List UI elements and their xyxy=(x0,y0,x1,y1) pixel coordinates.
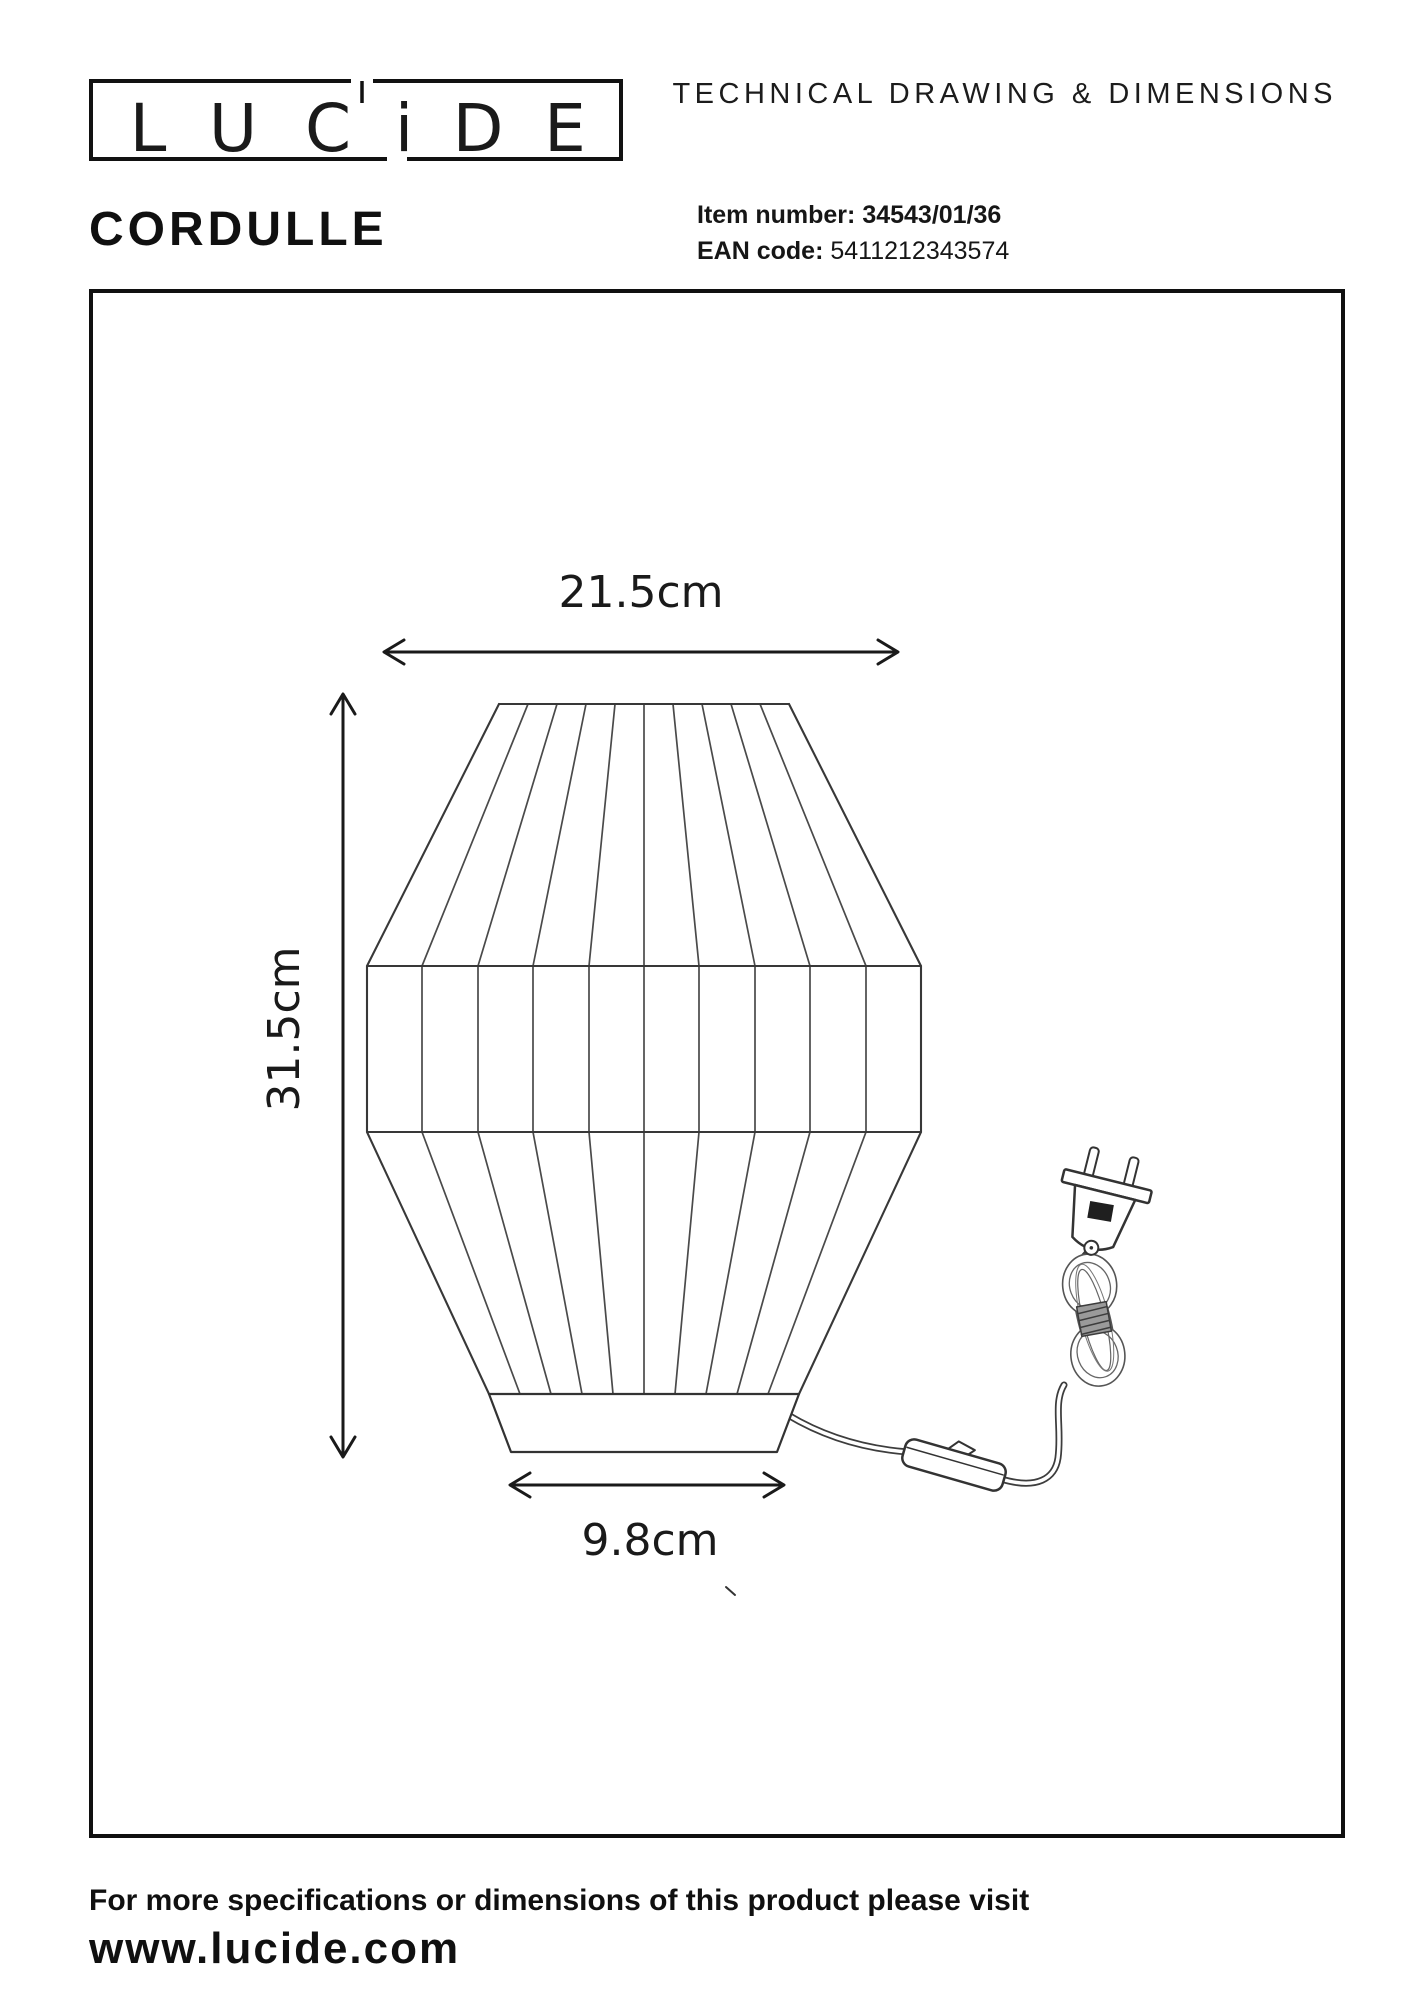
ean-row: EAN code: 5411212343574 xyxy=(697,233,1009,269)
logo-letter: i xyxy=(395,90,413,163)
lamp-base xyxy=(489,1394,799,1452)
ean-value: 5411212343574 xyxy=(830,237,1009,265)
pleat-line xyxy=(589,704,615,1394)
logo-letter: D xyxy=(453,90,504,163)
logo-letter: L xyxy=(130,90,167,163)
width-dimension-arrow xyxy=(384,640,898,664)
pleat-line xyxy=(673,704,699,1394)
page: L U C i D E TECHNICAL DRAWING & DIMENSIO… xyxy=(0,0,1414,2000)
height-dimension-arrow xyxy=(331,694,355,1457)
item-number-row: Item number: 34543/01/36 xyxy=(697,197,1009,233)
logo-frame xyxy=(91,81,621,159)
cord-coil xyxy=(1042,1244,1145,1396)
technical-drawing: 21.5cm 31.5cm xyxy=(93,293,1341,1834)
doc-title: TECHNICAL DRAWING & DIMENSIONS xyxy=(672,78,1337,111)
stray-mark xyxy=(726,1587,735,1595)
pleat-line xyxy=(422,704,528,1394)
pleat-line xyxy=(478,704,557,1394)
logo-letter: U xyxy=(209,90,257,163)
website-url: www.lucide.com xyxy=(89,1924,1029,1974)
power-plug-icon xyxy=(1046,1142,1159,1266)
footer: For more specifications or dimensions of… xyxy=(89,1884,1029,1974)
product-name: CORDULLE xyxy=(89,202,388,257)
base-dimension-arrow xyxy=(510,1473,784,1497)
logo-letter: E xyxy=(544,90,586,163)
drawing-box: 21.5cm 31.5cm xyxy=(89,289,1345,1838)
inline-switch xyxy=(900,1428,1010,1493)
item-number-label: Item number: xyxy=(697,201,855,229)
width-dimension-label: 21.5cm xyxy=(558,567,723,618)
height-dimension-label: 31.5cm xyxy=(259,946,310,1111)
pleat-line xyxy=(702,704,755,1394)
footer-note: For more specifications or dimensions of… xyxy=(89,1884,1029,1918)
product-codes: Item number: 34543/01/36 EAN code: 54112… xyxy=(697,197,1009,269)
lucide-logo: L U C i D E xyxy=(89,79,623,163)
base-dimension-label: 9.8cm xyxy=(581,1515,718,1566)
pleat-line xyxy=(760,704,866,1394)
lamp-shade xyxy=(367,704,921,1394)
ean-label: EAN code: xyxy=(697,237,823,265)
coil-wrap-band xyxy=(1077,1302,1112,1337)
item-number-value: 34543/01/36 xyxy=(862,201,1001,229)
pleat-line xyxy=(533,704,586,1394)
logo-letter: C xyxy=(305,90,351,163)
pleat-line xyxy=(731,704,810,1394)
